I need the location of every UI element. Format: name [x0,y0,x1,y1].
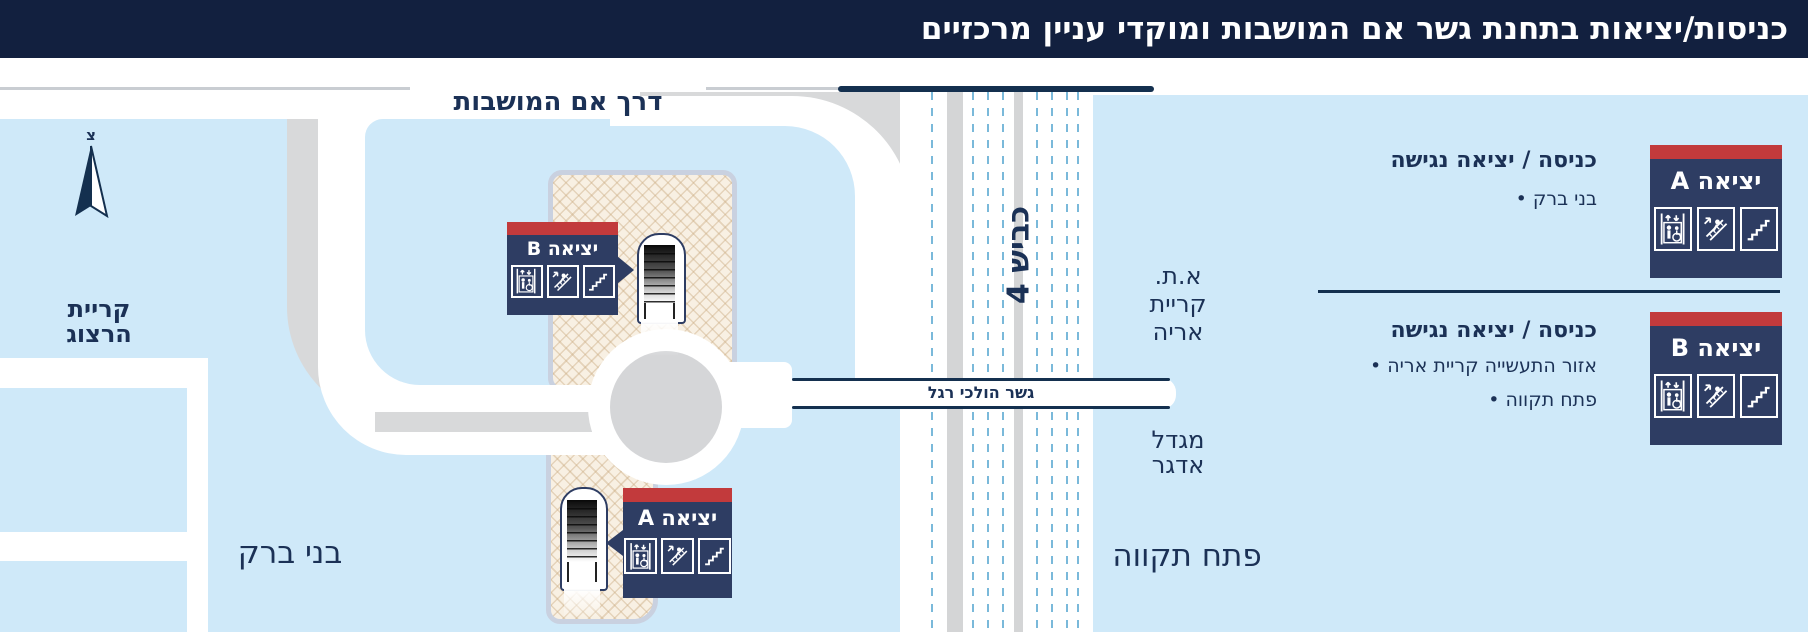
escalator-icon [661,538,694,574]
lane-line [1036,92,1038,632]
highway-median [1014,92,1023,632]
bnei-brak-label: בני ברק [238,535,343,571]
stairs-b-treads [644,245,675,303]
elevator-icon [1654,207,1692,251]
lane-line [972,92,974,632]
north-indicator: צ [72,126,110,218]
exit-a-icons [624,538,731,574]
route4-label: כביש 4 [1002,206,1037,304]
sign-red-bar [507,222,618,235]
page-title: כניסות/יציאות בתחנת גשר אם המושבות ומוקד… [901,11,1808,47]
approach-median [375,412,592,432]
legend-exit-b-sign: יציאה B [1650,312,1782,445]
lane-line [987,92,989,632]
legend-b-bullet: אזור התעשייה קריית אריה • [1370,355,1597,377]
elevator-icon [624,538,657,574]
legend-a-icons [1654,207,1778,251]
lane-line [1077,92,1079,632]
stairs-b-rails [644,303,675,319]
stairs-a-glow [564,589,600,619]
exit-b-arrow-icon [617,256,634,284]
petah-tikva-label: פתח תקווה [1112,538,1261,574]
legend-a-bullet: בני ברק • [1516,188,1597,210]
sign-red-bar [1650,145,1782,159]
kiryat-arye-label: א.ת. קריית אריה [1149,262,1206,346]
sign-red-bar [1650,312,1782,326]
local-road-west-lower [0,532,187,561]
legend-exit-b-label: יציאה B [1671,334,1761,362]
lane-line [1051,92,1053,632]
exit-b-label: יציאה B [527,238,599,260]
escalator-icon [1697,207,1735,251]
lane-line [1002,92,1004,632]
exit-a-arrow-icon [606,530,623,556]
map-exit-b-sign: יציאה B [507,222,618,315]
legend-a-heading: כניסה / יציאה נגישה [1390,148,1597,173]
road-centerline [706,87,856,90]
bridge-rail [792,406,1170,409]
highway-route4 [900,92,1093,632]
elevator-icon [1654,374,1692,418]
bottom-edge-strip [0,632,1808,636]
kiryat-herzog-label: קריית הרצוג [66,297,132,347]
exit-b-icons [511,265,615,298]
elevator-icon [511,265,543,298]
stairs-b-glow [641,322,678,356]
legend-b-bullet: פתח תקווה • [1488,389,1597,411]
local-road-vertical [187,358,208,636]
road-em-hamoshavot-label: דרך אם המושבות [454,87,663,117]
road-centerline [0,87,410,90]
highway-shoulder [947,92,963,632]
north-arrow-icon [72,144,110,218]
sign-red-bar [623,488,732,502]
bridge-rail [792,378,1170,381]
em-hamoshavot-bridge-line [838,86,1154,92]
footbridge-label: גשר הולכי רגל [786,383,1176,402]
stairs-a-rails [567,562,597,582]
stairs-icon [1740,207,1778,251]
exit-a-label: יציאה A [638,506,717,530]
lane-line [931,92,933,632]
legend-b-heading: כניסה / יציאה נגישה [1390,318,1597,343]
stairs-icon [698,538,731,574]
title-bar: כניסות/יציאות בתחנת גשר אם המושבות ומוקד… [0,0,1808,58]
stairs-a-treads [567,500,597,562]
map-exit-a-sign: יציאה A [623,488,732,598]
escalator-icon [1697,374,1735,418]
lane-line [1066,92,1068,632]
local-road-west-upper [0,358,208,388]
stairs-icon [583,265,615,298]
escalator-icon [547,265,579,298]
legend-b-icons [1654,374,1778,418]
legend-exit-a-sign: יציאה A [1650,145,1782,278]
legend-exit-a-label: יציאה A [1671,167,1762,195]
roundabout-center [610,351,722,463]
legend-divider [1318,290,1780,293]
stairs-icon [1740,374,1778,418]
north-letter: צ [72,126,110,144]
migdal-adgar-label: מגדל אדגר [1152,428,1205,478]
